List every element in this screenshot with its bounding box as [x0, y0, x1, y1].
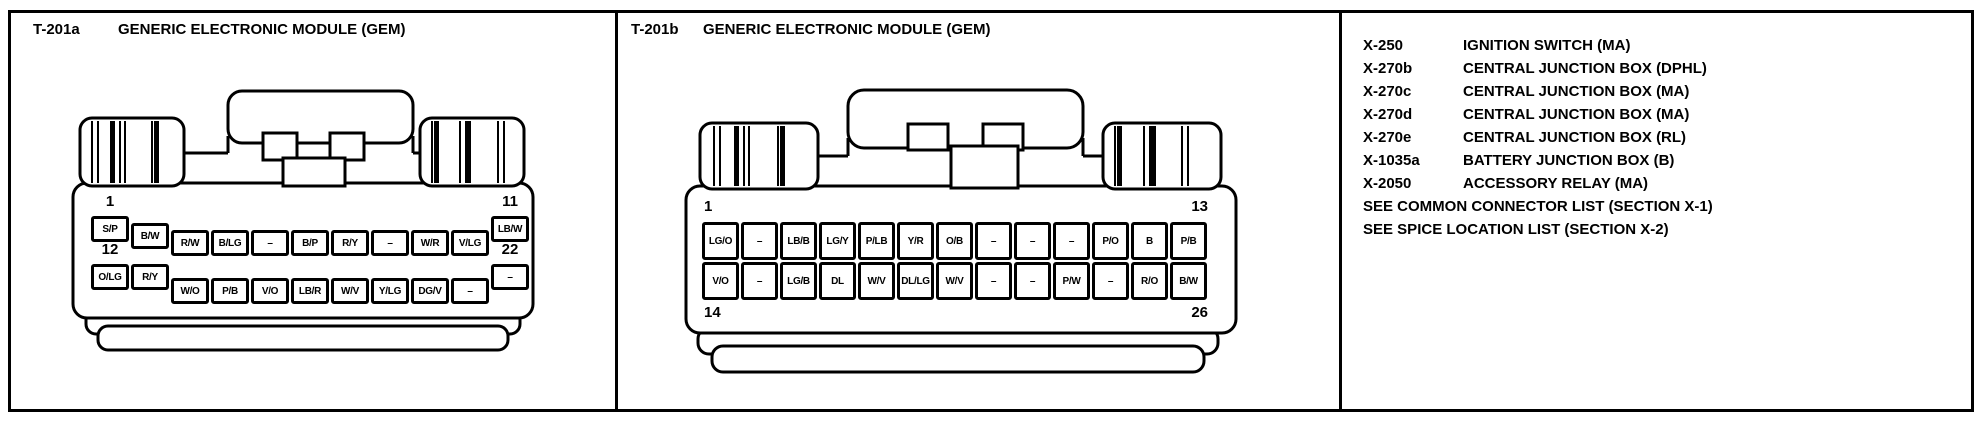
- t201a-title: GENERIC ELECTRONIC MODULE (GEM): [118, 21, 406, 38]
- t201b-pin14-label: 14: [704, 304, 742, 321]
- pin-cell: W/V: [858, 262, 895, 300]
- legend-code: X-270d: [1363, 105, 1463, 124]
- t201b-pin-row-2: V/O–LG/BDLW/VDL/LGW/V––P/W–R/OB/W: [702, 262, 1207, 300]
- pin-cell: DG/V: [411, 278, 449, 304]
- pin-cell: S/P: [91, 216, 129, 242]
- t201b-pin13-label: 13: [1170, 198, 1208, 215]
- t201a-pin-row-2: O/LGR/YW/OP/BV/OLB/RW/VY/LGDG/V––: [91, 278, 529, 304]
- legend-note-splice-location: SEE SPICE LOCATION LIST (SECTION X-2): [1363, 220, 1713, 239]
- pin-cell: –: [741, 222, 778, 260]
- pin-cell: R/Y: [331, 230, 369, 256]
- legend-row: X-1035a BATTERY JUNCTION BOX (B): [1363, 151, 1713, 170]
- pin-cell: LG/B: [780, 262, 817, 300]
- pin-cell: V/O: [702, 262, 739, 300]
- t201b-pin-row-1: LG/O–LB/BLG/YP/LBY/RO/B–––P/OBP/B: [702, 222, 1207, 260]
- pin-cell: –: [975, 262, 1012, 300]
- pin-cell: O/B: [936, 222, 973, 260]
- legend-code: X-250: [1363, 36, 1463, 55]
- pin-cell: –: [1092, 262, 1129, 300]
- pin-cell: W/V: [936, 262, 973, 300]
- legend-code: X-2050: [1363, 174, 1463, 193]
- t201a-pin-row-1: S/PB/WR/WB/LG–B/PR/Y–W/RV/LGLB/W: [91, 230, 529, 256]
- pin-cell: –: [741, 262, 778, 300]
- t201b-title: GENERIC ELECTRONIC MODULE (GEM): [703, 21, 991, 38]
- legend-code: X-270c: [1363, 82, 1463, 101]
- pin-cell: P/LB: [858, 222, 895, 260]
- legend-note-common-connector: SEE COMMON CONNECTOR LIST (SECTION X-1): [1363, 197, 1713, 216]
- connector-legend: X-250 IGNITION SWITCH (MA) X-270b CENTRA…: [1363, 36, 1713, 239]
- pin-cell: P/B: [1170, 222, 1207, 260]
- pin-cell: V/O: [251, 278, 289, 304]
- pin-cell: Y/LG: [371, 278, 409, 304]
- pin-cell: LG/Y: [819, 222, 856, 260]
- t201b-pin26-label: 26: [1170, 304, 1208, 321]
- pin-cell: B: [1131, 222, 1168, 260]
- legend-label: IGNITION SWITCH (MA): [1463, 36, 1630, 55]
- pin-cell: B/P: [291, 230, 329, 256]
- pin-cell: R/O: [1131, 262, 1168, 300]
- panel-divider-2: [1339, 13, 1342, 409]
- pin-cell: B/LG: [211, 230, 249, 256]
- pin-cell: Y/R: [897, 222, 934, 260]
- pin-cell: DL/LG: [897, 262, 934, 300]
- legend-row: X-270b CENTRAL JUNCTION BOX (DPHL): [1363, 59, 1713, 78]
- pin-cell: P/O: [1092, 222, 1129, 260]
- pin-cell: B/W: [131, 223, 169, 249]
- legend-label: CENTRAL JUNCTION BOX (MA): [1463, 105, 1689, 124]
- pin-cell: –: [1014, 222, 1051, 260]
- pin-cell: R/W: [171, 230, 209, 256]
- pin-cell: R/Y: [131, 264, 169, 290]
- t201b-connector-diagram: 1 13 14 26 LG/O–LB/BLG/YP/LBY/RO/B–––P/O…: [678, 88, 1253, 388]
- pin-cell: W/V: [331, 278, 369, 304]
- legend-row: X-2050 ACCESSORY RELAY (MA): [1363, 174, 1713, 193]
- t201b-code: T-201b: [631, 21, 679, 38]
- legend-label: CENTRAL JUNCTION BOX (DPHL): [1463, 59, 1707, 78]
- pin-cell: –: [491, 264, 529, 290]
- pin-cell: P/W: [1053, 262, 1090, 300]
- legend-label: CENTRAL JUNCTION BOX (RL): [1463, 128, 1686, 147]
- pin-cell: LB/W: [491, 216, 529, 242]
- legend-row: X-270d CENTRAL JUNCTION BOX (MA): [1363, 105, 1713, 124]
- pin-cell: LB/B: [780, 222, 817, 260]
- pin-cell: V/LG: [451, 230, 489, 256]
- legend-row: X-250 IGNITION SWITCH (MA): [1363, 36, 1713, 55]
- pin-cell: O/LG: [91, 264, 129, 290]
- legend-label: BATTERY JUNCTION BOX (B): [1463, 151, 1674, 170]
- legend-code: X-1035a: [1363, 151, 1463, 170]
- legend-code: X-270e: [1363, 128, 1463, 147]
- legend-label: CENTRAL JUNCTION BOX (MA): [1463, 82, 1689, 101]
- pin-cell: –: [251, 230, 289, 256]
- panel-divider-1: [615, 13, 618, 409]
- t201a-code: T-201a: [33, 21, 80, 38]
- pin-cell: –: [975, 222, 1012, 260]
- pin-cell: DL: [819, 262, 856, 300]
- legend-row: X-270e CENTRAL JUNCTION BOX (RL): [1363, 128, 1713, 147]
- pin-cell: –: [451, 278, 489, 304]
- t201a-connector-diagram: 1 11 12 22 S/PB/WR/WB/LG–B/PR/Y–W/RV/LGL…: [68, 88, 538, 363]
- pin-cell: –: [1053, 222, 1090, 260]
- legend-code: X-270b: [1363, 59, 1463, 78]
- diagram-frame: T-201a GENERIC ELECTRONIC MODULE (GEM): [8, 10, 1974, 412]
- pin-cell: W/R: [411, 230, 449, 256]
- pin-cell: P/B: [211, 278, 249, 304]
- legend-label: ACCESSORY RELAY (MA): [1463, 174, 1648, 193]
- t201a-pin11-label: 11: [491, 193, 529, 210]
- pin-cell: W/O: [171, 278, 209, 304]
- pin-cell: LB/R: [291, 278, 329, 304]
- t201a-pin1-label: 1: [91, 193, 129, 210]
- pin-cell: –: [371, 230, 409, 256]
- pin-cell: –: [1014, 262, 1051, 300]
- legend-row: X-270c CENTRAL JUNCTION BOX (MA): [1363, 82, 1713, 101]
- pin-cell: B/W: [1170, 262, 1207, 300]
- t201b-pin1-label: 1: [704, 198, 742, 215]
- pin-cell: LG/O: [702, 222, 739, 260]
